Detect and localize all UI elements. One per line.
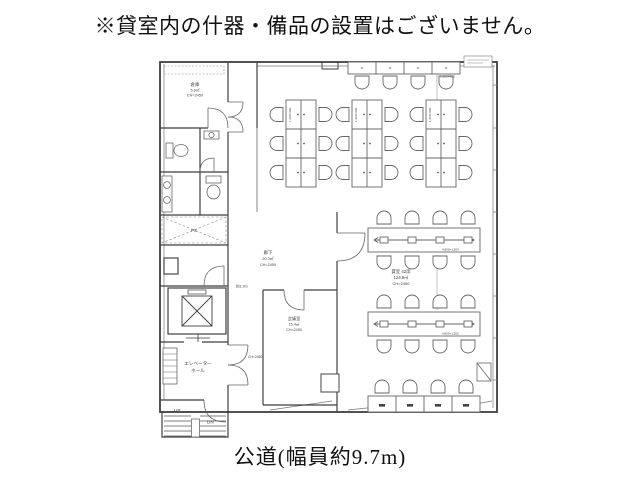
road-label: 公道(幅員約9.7m)	[0, 441, 640, 471]
bottom-desk-row	[368, 380, 480, 412]
meeting-ceiling: CH=2450	[286, 328, 302, 332]
desk-island	[336, 100, 398, 187]
chair-icon	[355, 76, 369, 89]
hall-ceiling-label: CH=2450	[248, 355, 263, 359]
floor-plan: 倉庫 5.6㎡ CH=2450 PS	[155, 50, 505, 440]
chair-icon	[411, 76, 425, 89]
chair-icon	[403, 380, 417, 393]
sink-unit	[164, 258, 178, 274]
stairs-down-label: DN	[207, 420, 214, 425]
pipe-space: PS	[162, 217, 226, 243]
meeting-name: 会議室	[288, 315, 301, 322]
meter-box	[163, 348, 177, 384]
meeting-table	[368, 295, 480, 353]
office-name: 貸室 42席	[391, 268, 411, 275]
corridor: 廊下 20.3㎡ CH=2450 約1.9m	[236, 249, 276, 289]
stairs-up-label: UP	[174, 408, 180, 413]
desk-size-label: 1,200×600	[288, 107, 292, 122]
corridor-ceiling: CH=2450	[260, 263, 276, 267]
ps-label: PS	[191, 228, 197, 233]
elevator-hall: エレベーター ホール CH=2450	[184, 355, 262, 373]
disclaimer-text: ※貸室内の什器・備品の設置はございません。	[0, 10, 640, 40]
office-area: 1,200×600 1,200×600 1,200×600 1,200×600 …	[270, 56, 492, 412]
elevator	[168, 288, 226, 342]
desk-island	[410, 100, 472, 187]
chair-icon	[459, 380, 473, 393]
meeting-room: 会議室 15.4㎡ CH=2450	[286, 315, 339, 392]
storage-room: 倉庫 5.6㎡ CH=2450	[164, 66, 224, 98]
chair-icon	[431, 380, 445, 393]
hall-name-1: エレベーター	[184, 360, 212, 367]
meeting-area: 15.4㎡	[289, 322, 300, 327]
office-ceiling: CH=2450	[392, 281, 410, 286]
desk-size-label: 1,200×600	[428, 107, 432, 122]
column	[321, 374, 339, 392]
chair-icon	[375, 380, 389, 393]
storage-ceiling: CH=2450	[187, 94, 203, 98]
desk-size-label: 1,200×600	[354, 107, 358, 122]
storage-area: 5.6㎡	[190, 88, 199, 93]
desk-island	[270, 100, 332, 187]
table-size-label: 4,800×1,200	[442, 332, 459, 336]
meeting-table	[368, 211, 480, 269]
storage-name: 倉庫	[191, 81, 200, 88]
ac-unit-icon	[477, 363, 491, 381]
corridor-name: 廊下	[264, 249, 273, 256]
corridor-width-label: 約1.9m	[236, 284, 248, 289]
table-size-label: 4,800×1,200	[442, 248, 459, 252]
rooftop-box	[464, 56, 492, 67]
office-area-label: 124.9㎡	[394, 274, 409, 280]
corridor-area: 20.3㎡	[262, 256, 273, 261]
chair-icon	[383, 76, 397, 89]
hall-name-2: ホール	[191, 368, 205, 373]
elevator-icon	[182, 296, 212, 326]
desk-size-label: 1,200×600	[440, 75, 455, 79]
